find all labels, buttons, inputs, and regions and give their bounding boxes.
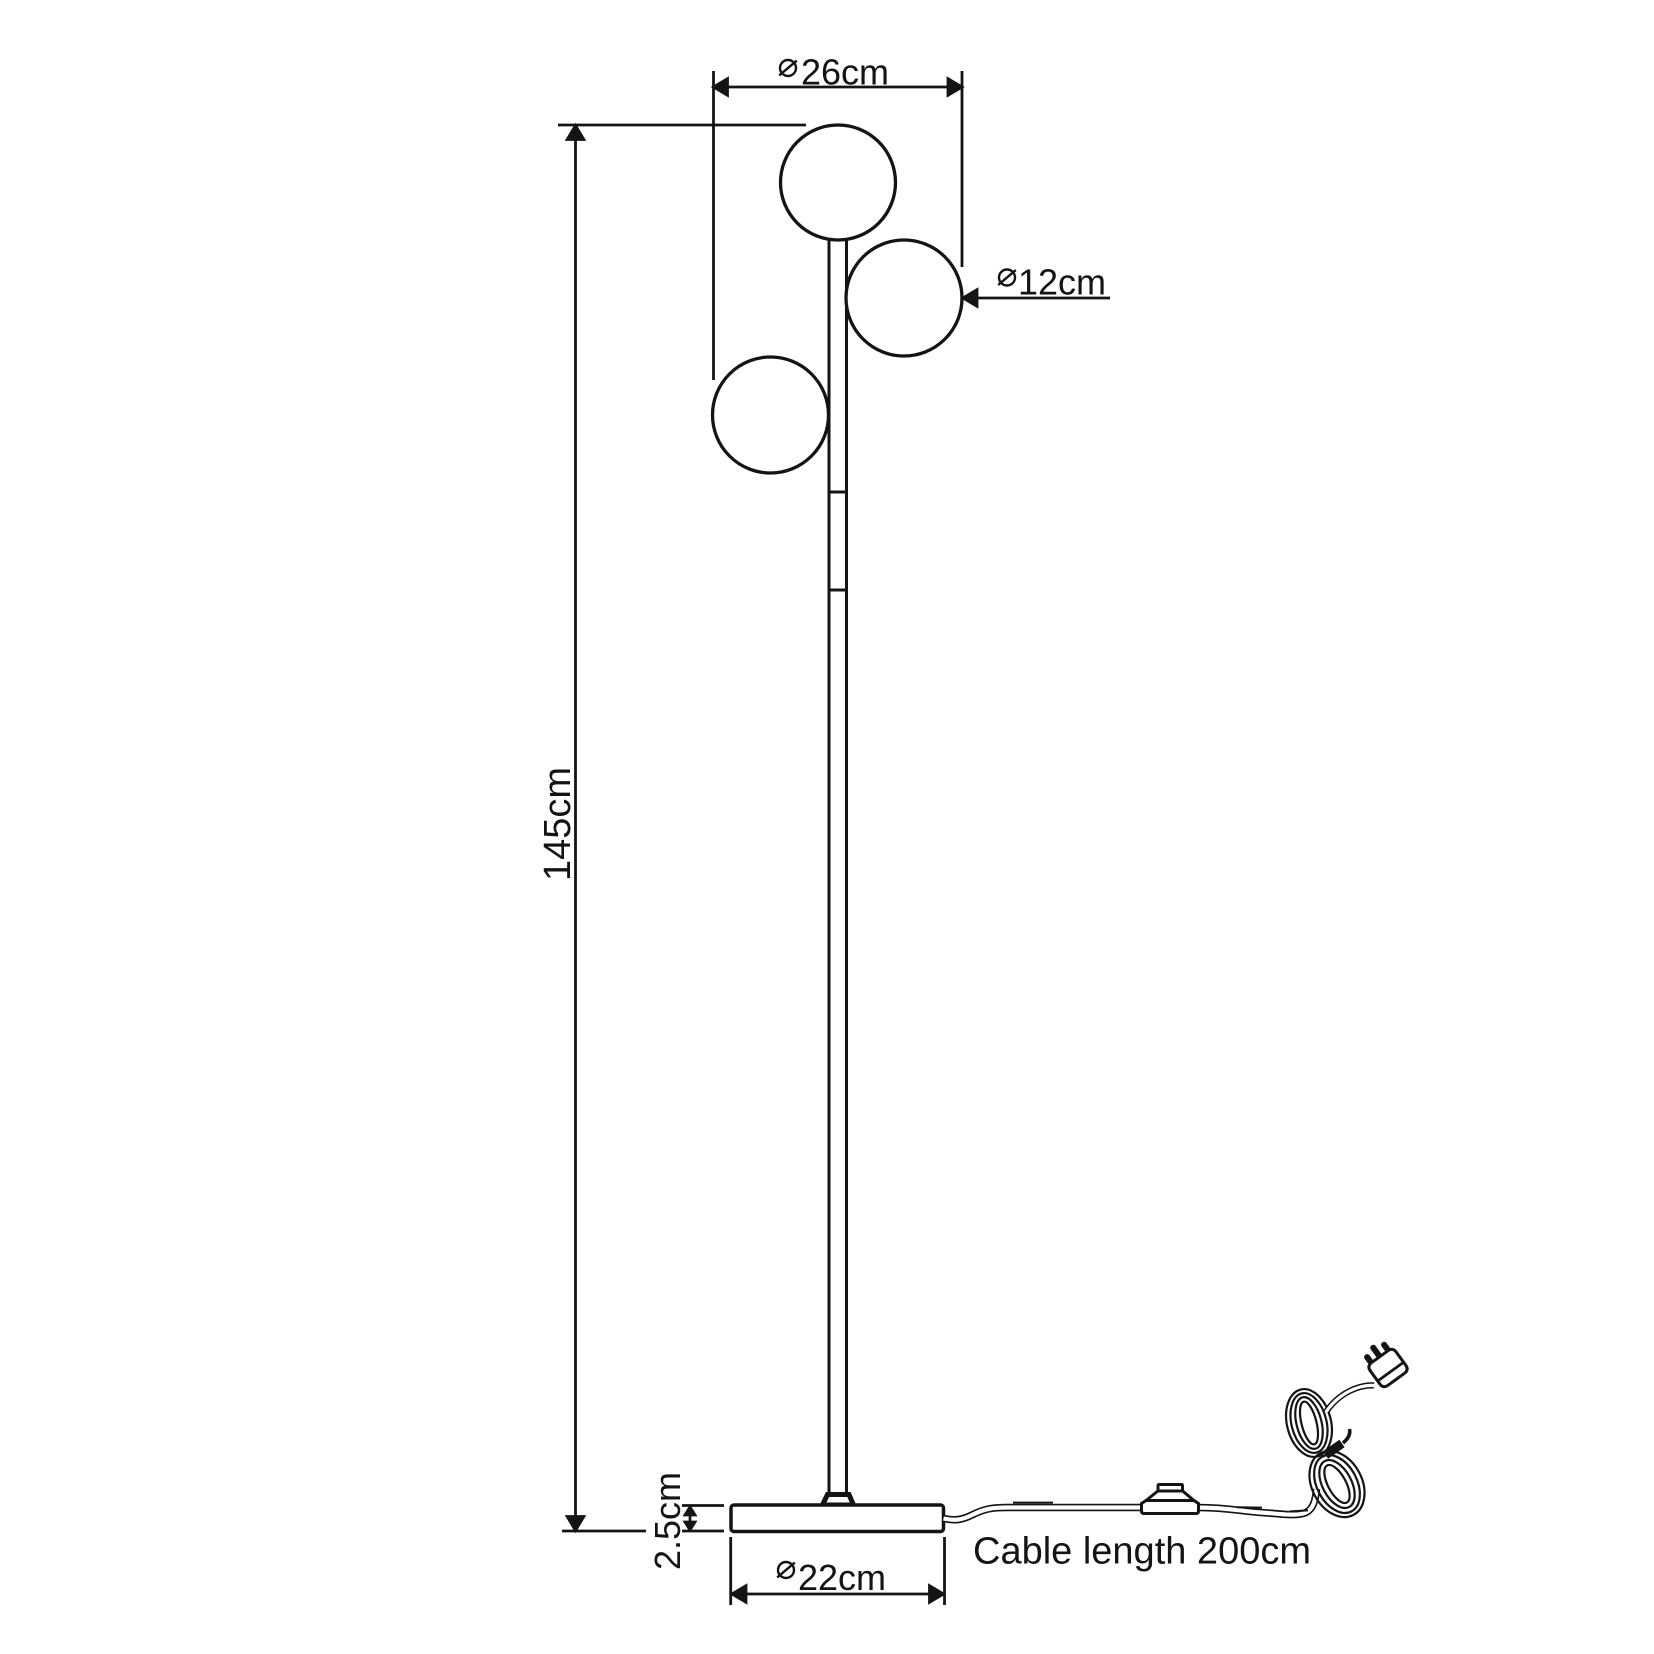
svg-text:Cable length 200cm: Cable length 200cm: [973, 1531, 1311, 1573]
svg-text:2.5cm: 2.5cm: [647, 1472, 688, 1570]
svg-text:26cm: 26cm: [801, 52, 889, 93]
svg-text:12cm: 12cm: [1018, 262, 1106, 303]
svg-text:145cm: 145cm: [537, 767, 579, 881]
svg-text:22cm: 22cm: [798, 1557, 886, 1598]
